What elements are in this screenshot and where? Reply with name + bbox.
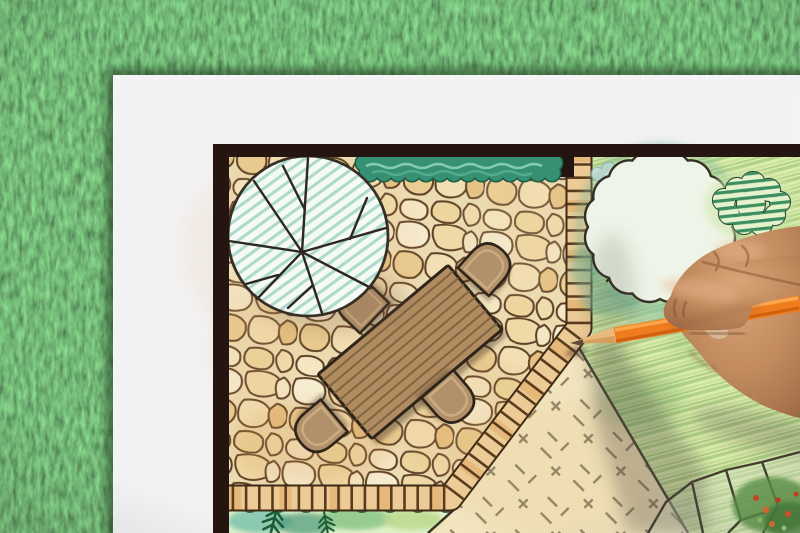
photo-vignette (0, 0, 800, 533)
scene-canvas (0, 0, 800, 533)
photo-scene (0, 0, 800, 533)
